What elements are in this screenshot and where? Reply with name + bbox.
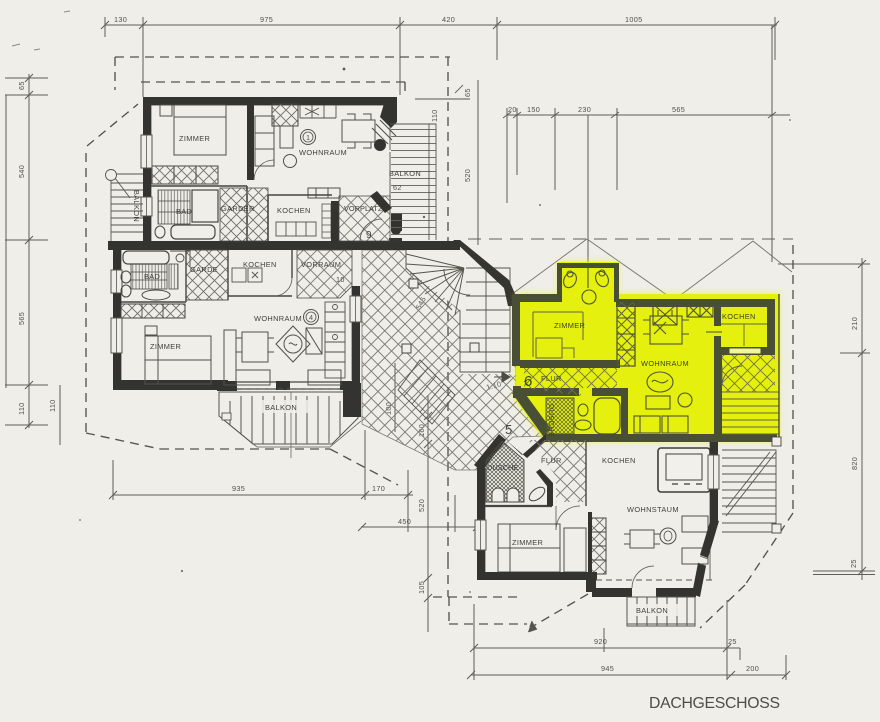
- svg-text:KOCHEN: KOCHEN: [722, 312, 756, 321]
- svg-text:520: 520: [417, 499, 426, 512]
- svg-text:BAD: BAD: [144, 272, 160, 281]
- svg-text:DUSCHE: DUSCHE: [547, 404, 556, 437]
- svg-text:BALKON: BALKON: [389, 169, 421, 178]
- svg-text:65: 65: [463, 88, 472, 97]
- svg-text:FLUR: FLUR: [541, 374, 562, 383]
- svg-text:935: 935: [232, 484, 245, 493]
- svg-text:GARDE: GARDE: [190, 265, 218, 274]
- svg-text:KOCHEN: KOCHEN: [602, 456, 636, 465]
- svg-text:230: 230: [578, 105, 591, 114]
- svg-text:820: 820: [850, 457, 859, 470]
- svg-text:200: 200: [746, 664, 759, 673]
- svg-text:1005: 1005: [625, 15, 642, 24]
- svg-text:25: 25: [728, 637, 737, 646]
- svg-text:WOHNRAUM: WOHNRAUM: [299, 148, 347, 157]
- svg-text:1: 1: [306, 133, 310, 142]
- svg-text:105: 105: [417, 581, 426, 594]
- svg-text:520: 520: [463, 169, 472, 182]
- svg-text:540: 540: [17, 165, 26, 178]
- svg-text:975: 975: [260, 15, 273, 24]
- svg-text:DUSCHE: DUSCHE: [487, 463, 518, 472]
- svg-text:BAD: BAD: [176, 207, 192, 216]
- svg-text:170: 170: [372, 484, 385, 493]
- svg-text:WOHNRAUM: WOHNRAUM: [641, 359, 689, 368]
- svg-text:110: 110: [48, 399, 57, 412]
- svg-text:ZIMMER: ZIMMER: [179, 134, 210, 143]
- svg-text:KOCHEN: KOCHEN: [277, 206, 311, 215]
- svg-text:130: 130: [114, 15, 127, 24]
- svg-text:150: 150: [527, 105, 540, 114]
- svg-text:6: 6: [524, 373, 532, 390]
- svg-text:62: 62: [393, 183, 402, 192]
- svg-text:565: 565: [672, 105, 685, 114]
- svg-text:9: 9: [366, 230, 372, 241]
- svg-text:65: 65: [17, 81, 26, 90]
- svg-text:110: 110: [430, 109, 439, 122]
- svg-text:WOHNSTAUM: WOHNSTAUM: [627, 505, 679, 514]
- svg-text:VORRAUM: VORRAUM: [301, 260, 341, 269]
- svg-text:110: 110: [17, 402, 26, 415]
- svg-text:25: 25: [849, 559, 858, 568]
- svg-text:FLUR: FLUR: [541, 456, 562, 465]
- svg-text:945: 945: [601, 664, 614, 673]
- svg-text:ZIMMER: ZIMMER: [512, 538, 543, 547]
- svg-text:VORPLATZ: VORPLATZ: [344, 204, 383, 213]
- svg-text:BALKON: BALKON: [636, 606, 668, 615]
- svg-text:4: 4: [309, 313, 313, 322]
- svg-text:BALKON: BALKON: [265, 403, 297, 412]
- svg-text:ZIMMER: ZIMMER: [554, 321, 585, 330]
- svg-text:420: 420: [442, 15, 455, 24]
- svg-text:450: 450: [398, 517, 411, 526]
- svg-text:ZIMMER: ZIMMER: [150, 342, 181, 351]
- svg-text:210: 210: [850, 317, 859, 330]
- svg-text:5: 5: [505, 422, 512, 437]
- svg-text:920: 920: [594, 637, 607, 646]
- svg-text:10: 10: [336, 275, 345, 284]
- svg-text:BALKON: BALKON: [132, 190, 141, 222]
- svg-text:GARDER: GARDER: [221, 204, 255, 213]
- svg-text:20: 20: [508, 105, 517, 114]
- svg-text:565: 565: [17, 312, 26, 325]
- svg-text:WOHNRAUM: WOHNRAUM: [254, 314, 302, 323]
- svg-text:DACHGESCHOSS: DACHGESCHOSS: [649, 695, 780, 712]
